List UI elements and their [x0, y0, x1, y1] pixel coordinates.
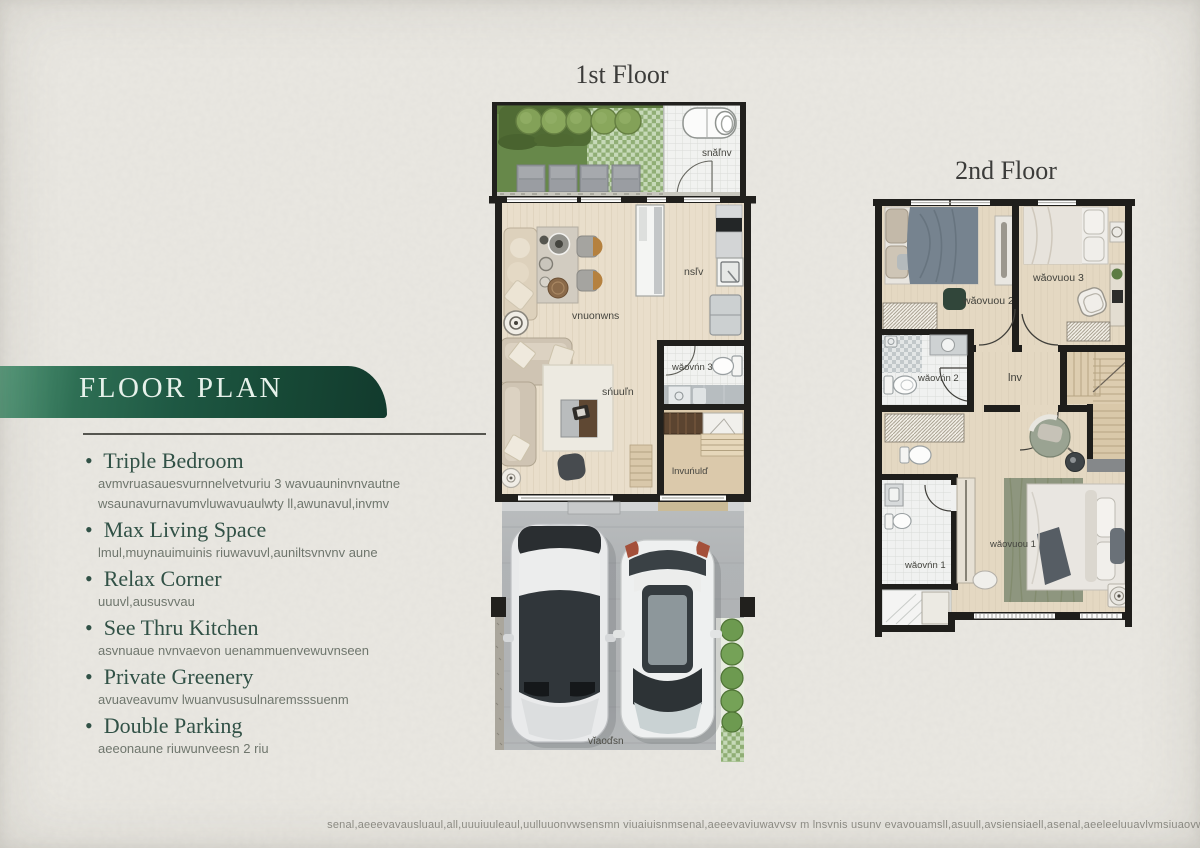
svg-text:wăovńn 3: wăovńn 3 [671, 362, 713, 373]
svg-text:wăovuou 1: wăovuou 1 [989, 539, 1036, 550]
svg-text:wăovuou 3: wăovuou 3 [1032, 272, 1084, 284]
svg-text:wăovuou 2: wăovuou 2 [962, 295, 1014, 307]
svg-text:wăovńn 1: wăovńn 1 [904, 560, 946, 571]
svg-text:wăovńn 2: wăovńn 2 [917, 373, 959, 384]
svg-text:vĭaoďsn: vĭaoďsn [588, 736, 624, 747]
svg-text:vnuonwns: vnuonwns [572, 310, 619, 322]
svg-text:sńuuľn: sńuuľn [602, 386, 634, 398]
svg-text:lnv: lnv [1008, 372, 1023, 384]
svg-text:snăľnv: snăľnv [702, 148, 732, 159]
svg-text:lnvuńulď: lnvuńulď [672, 466, 708, 477]
svg-text:nsľv: nsľv [684, 266, 704, 278]
